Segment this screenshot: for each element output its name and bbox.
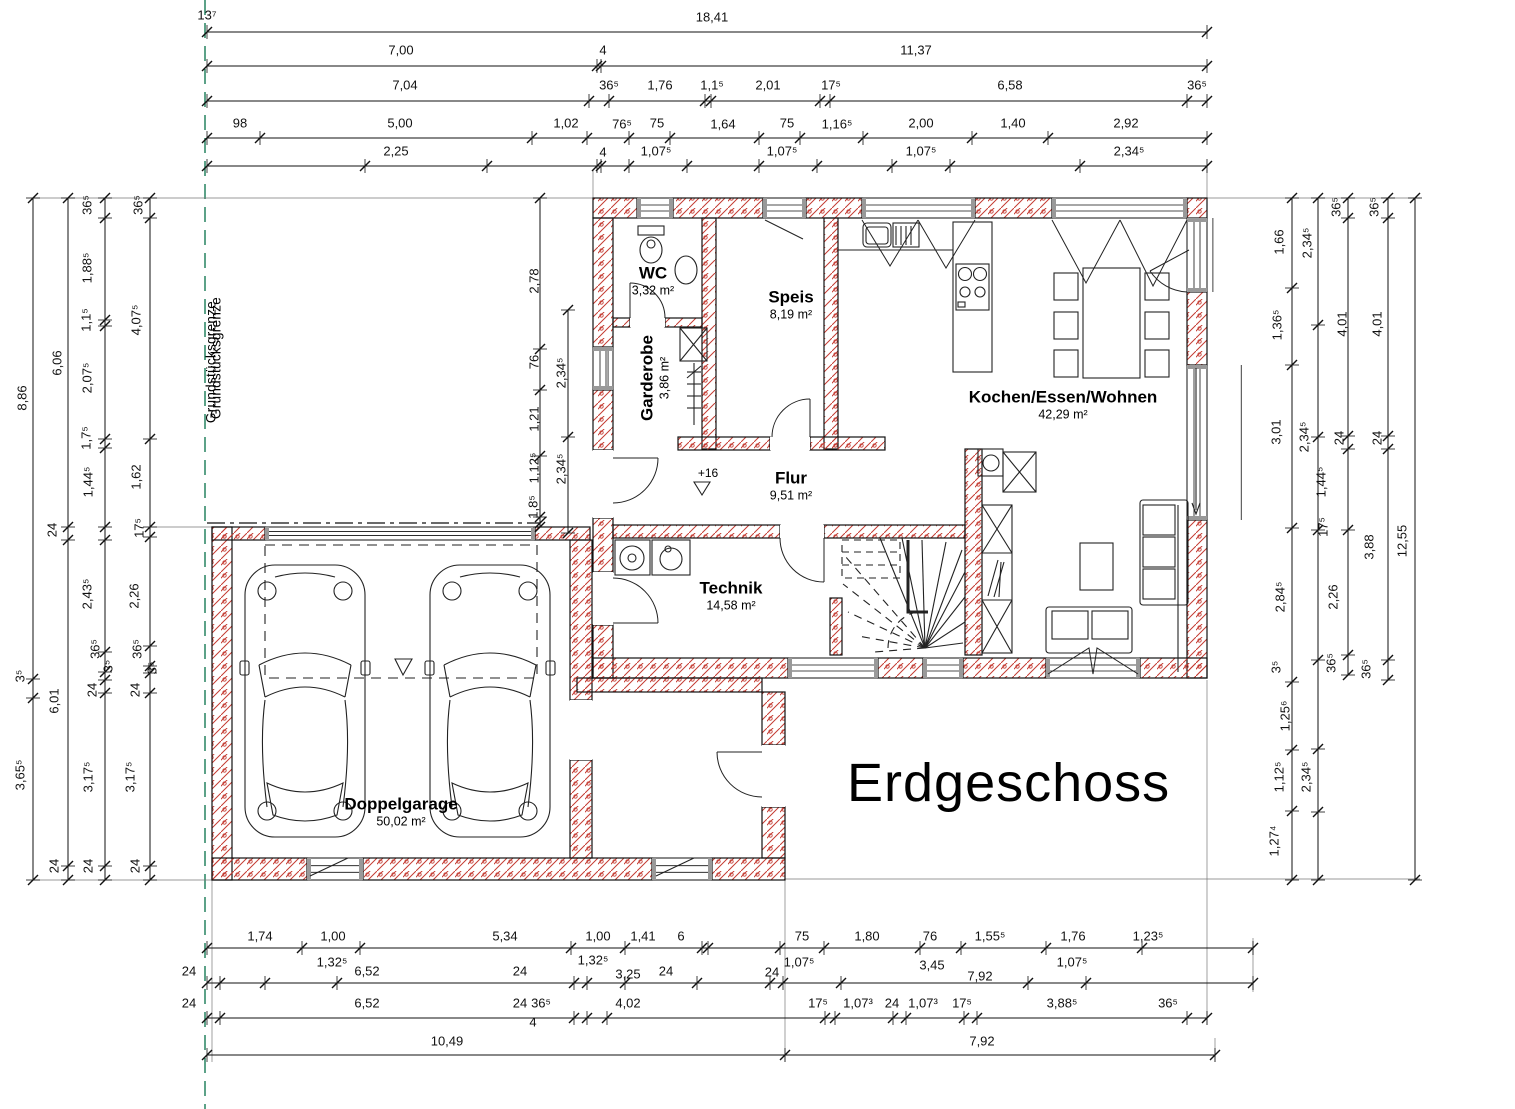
dimension-label: 4 — [599, 44, 606, 57]
dimension-label: 4,01 — [1371, 311, 1384, 336]
dimension-label: 75 — [650, 117, 664, 130]
dimension-label: 12,55 — [1396, 525, 1409, 558]
room-name: Kochen/Essen/Wohnen — [969, 387, 1158, 407]
room-label: Garderobe3,86 m² — [637, 335, 672, 421]
dimension-label: 36⁵ — [1158, 997, 1178, 1010]
room-label: WC3,32 m² — [632, 263, 674, 298]
labels-overlay: Erdgeschoss Grundstücksgrenze Grundstück… — [0, 0, 1515, 1109]
room-label: Doppelgarage50,02 m² — [344, 794, 457, 829]
dimension-label: 18,41 — [696, 11, 729, 24]
room-name: Speis — [768, 287, 813, 307]
dimension-label: 2,34⁵ — [1301, 228, 1314, 259]
dimension-label: 24 — [1333, 431, 1346, 445]
dimension-label: 3⁵ — [14, 670, 27, 683]
dimension-label: 2,26 — [1327, 584, 1340, 609]
dimension-label: 1,27⁴ — [1268, 826, 1281, 857]
dimension-label: 76 — [528, 355, 541, 369]
room-label: Speis8,19 m² — [768, 287, 813, 322]
dimension-label: 10,49 — [431, 1035, 464, 1048]
dimension-label: 76 — [923, 930, 937, 943]
dimension-label: 2,34⁵ — [1300, 762, 1313, 793]
dimension-label: 2,34⁵ — [1114, 145, 1145, 158]
dimension-label: 1,74 — [247, 930, 272, 943]
room-name: WC — [632, 263, 674, 283]
dimension-label: 3⁵ — [1270, 661, 1283, 674]
room-area: 9,51 m² — [770, 489, 812, 504]
dimension-label: 24 — [182, 965, 196, 978]
dimension-label: 6,06 — [51, 350, 64, 375]
room-label: Technik14,58 m² — [700, 578, 763, 613]
dimension-label: 1,66 — [1273, 229, 1286, 254]
dimension-label: 24 — [129, 859, 142, 873]
dimension-label: 3,88⁵ — [1047, 997, 1078, 1010]
dimension-label: 2,92 — [1113, 117, 1138, 130]
dimension-label: 1,07³ — [843, 997, 873, 1010]
dimension-label: 36⁵ — [1187, 79, 1207, 92]
room-label: Kochen/Essen/Wohnen42,29 m² — [969, 387, 1158, 422]
dimension-label: 1,07⁵ — [767, 145, 798, 158]
dimension-label: 1,02 — [553, 117, 578, 130]
dimension-label: 3⁵ — [146, 662, 159, 675]
dimension-label: 7,92 — [967, 970, 992, 983]
dimension-label: 2,00 — [908, 117, 933, 130]
dimension-label: 1,1⁵ — [80, 308, 93, 331]
dimension-label: 1,07⁵ — [1057, 956, 1088, 969]
dimension-label: 4 — [529, 1016, 536, 1029]
dimension-label: 36⁵ — [81, 195, 94, 215]
room-name: Flur — [770, 468, 812, 488]
dimension-label: 1,32⁵ — [578, 954, 609, 967]
room-name: Technik — [700, 578, 763, 598]
floor-plan-page: { "title": "Erdgeschoss", "property_boun… — [0, 0, 1515, 1109]
dimension-label: 2,25 — [383, 145, 408, 158]
dimension-label: 24 — [513, 997, 527, 1010]
dimension-label: 2,26 — [128, 583, 141, 608]
dimension-label: 36⁵ — [132, 195, 145, 215]
dimension-label: 75 — [780, 117, 794, 130]
dimension-label: 24 — [1371, 431, 1384, 445]
dimension-label: 2,34⁵ — [1298, 422, 1311, 453]
dimension-label: 2,84⁵ — [1274, 582, 1287, 613]
dimension-label: 1,88⁵ — [81, 253, 94, 284]
dimension-label: 3,17⁵ — [82, 762, 95, 793]
dimension-label: 24 — [82, 859, 95, 873]
dimension-label: 6,01 — [48, 688, 61, 713]
dimension-label: 3,88 — [1363, 534, 1376, 559]
dimension-label: 2,01 — [755, 79, 780, 92]
dimension-label: 8,86 — [16, 385, 29, 410]
drawing-title: Erdgeschoss — [847, 752, 1170, 814]
dimension-label: 24 — [46, 523, 59, 537]
room-area: 50,02 m² — [344, 815, 457, 830]
dimension-label: 17⁵ — [952, 997, 972, 1010]
dimension-label: 24 — [765, 966, 779, 979]
dimension-label: 1,36⁵ — [1271, 310, 1284, 341]
dimension-label: 1,41 — [630, 930, 655, 943]
dimension-label: 1,12⁵ — [1273, 762, 1286, 793]
dimension-label: 1,00 — [320, 930, 345, 943]
dimension-label: 1,16⁵ — [822, 118, 853, 131]
dimension-label: 1,32⁵ — [317, 956, 348, 969]
dimension-label: 1,1⁵ — [700, 79, 723, 92]
dimension-label: 1,40 — [1000, 117, 1025, 130]
dimension-label: 1,44⁵ — [1315, 467, 1328, 498]
dimension-label: 1,55⁵ — [975, 930, 1006, 943]
dimension-label: 3,01 — [1270, 419, 1283, 444]
dimension-label: 6,58 — [997, 79, 1022, 92]
dimension-label: 6,52 — [354, 965, 379, 978]
level-marker-label: +16 — [698, 466, 718, 480]
dimension-label: 1,76 — [647, 79, 672, 92]
room-area: 3,86 m² — [658, 335, 673, 421]
dimension-label: 6 — [677, 930, 684, 943]
dimension-label: 36⁵ — [1330, 197, 1343, 217]
dimension-label: 3⁵ — [102, 660, 115, 673]
room-area: 42,29 m² — [969, 408, 1158, 423]
dimension-label: 13⁷ — [197, 9, 216, 22]
property-boundary-label-shadow: Grundstücksgrenze — [209, 297, 224, 419]
dimension-label: 24 — [129, 683, 142, 697]
dimension-label: 6,52 — [354, 997, 379, 1010]
dimension-label: 2,43⁵ — [81, 579, 94, 610]
dimension-label: 4,07⁵ — [130, 305, 143, 336]
dimension-label: 7,04 — [392, 79, 417, 92]
dimension-label: 1,07⁵ — [906, 145, 937, 158]
dimension-label: 3,45 — [919, 959, 944, 972]
dimension-label: 2,07⁵ — [81, 363, 94, 394]
dimension-label: 36⁵ — [599, 79, 619, 92]
dimension-label: 1,21 — [528, 406, 541, 431]
room-area: 3,32 m² — [632, 284, 674, 299]
dimension-label: 4,01 — [1336, 311, 1349, 336]
dimension-label: 24 — [48, 859, 61, 873]
dimension-label: 17⁵ — [821, 79, 841, 92]
dimension-label: 17⁵ — [1317, 517, 1330, 537]
dimension-label: 36⁵ — [1360, 659, 1373, 679]
room-area: 14,58 m² — [700, 599, 763, 614]
dimension-label: 24 — [513, 965, 527, 978]
dimension-label: 17⁵ — [808, 997, 828, 1010]
dimension-label: 3,65⁵ — [14, 760, 27, 791]
dimension-label: 4 — [599, 146, 606, 159]
dimension-label: 1,23⁵ — [1133, 930, 1164, 943]
dimension-label: 36⁵ — [1325, 653, 1338, 673]
dimension-label: 1,44⁵ — [82, 467, 95, 498]
dimension-label: 1,76 — [1060, 930, 1085, 943]
dimension-label: 1,25⁶ — [1279, 701, 1292, 732]
dimension-label: 1,62 — [130, 464, 143, 489]
dimension-label: 24 — [182, 997, 196, 1010]
dimension-label: 1,8⁵ — [527, 495, 540, 518]
dimension-label: 36⁵ — [1368, 197, 1381, 217]
room-name: Doppelgarage — [344, 794, 457, 814]
dimension-label: 36⁵ — [131, 639, 144, 659]
room-area: 8,19 m² — [768, 308, 813, 323]
dimension-label: 1,7⁵ — [80, 426, 93, 449]
dimension-label: 7,92 — [969, 1035, 994, 1048]
dimension-label: 1,64 — [710, 118, 735, 131]
room-name: Garderobe — [637, 335, 657, 421]
dimension-label: 1,12⁵ — [528, 453, 541, 484]
dimension-label: 11,37 — [900, 44, 932, 57]
dimension-label: 3,17⁵ — [124, 762, 137, 793]
dimension-label: 1,80 — [854, 930, 879, 943]
dimension-label: 76⁵ — [612, 118, 632, 131]
dimension-label: 24 — [659, 965, 673, 978]
dimension-label: 1,07⁵ — [784, 956, 815, 969]
dimension-label: 5,00 — [387, 117, 412, 130]
dimension-label: 24 — [86, 683, 99, 697]
dimension-label: 24 — [885, 997, 899, 1010]
dimension-label: 98 — [233, 117, 247, 130]
room-label: Flur9,51 m² — [770, 468, 812, 503]
dimension-label: 75 — [795, 930, 809, 943]
dimension-label: 7,00 — [388, 44, 413, 57]
dimension-label: 36⁵ — [89, 639, 102, 659]
dimension-label: 3,25 — [615, 968, 640, 981]
dimension-label: 2,34⁵ — [555, 358, 568, 389]
dimension-label: 1,07³ — [908, 997, 938, 1010]
dimension-label: 36⁵ — [531, 997, 551, 1010]
dimension-label: 17⁵ — [133, 518, 146, 538]
dimension-label: 5,34 — [492, 930, 517, 943]
dimension-label: 2,78 — [528, 268, 541, 293]
dimension-label: 2,34⁵ — [555, 454, 568, 485]
dimension-label: 4,02 — [615, 997, 640, 1010]
dimension-label: 1,00 — [585, 930, 610, 943]
dimension-label: 1,07⁵ — [641, 145, 672, 158]
